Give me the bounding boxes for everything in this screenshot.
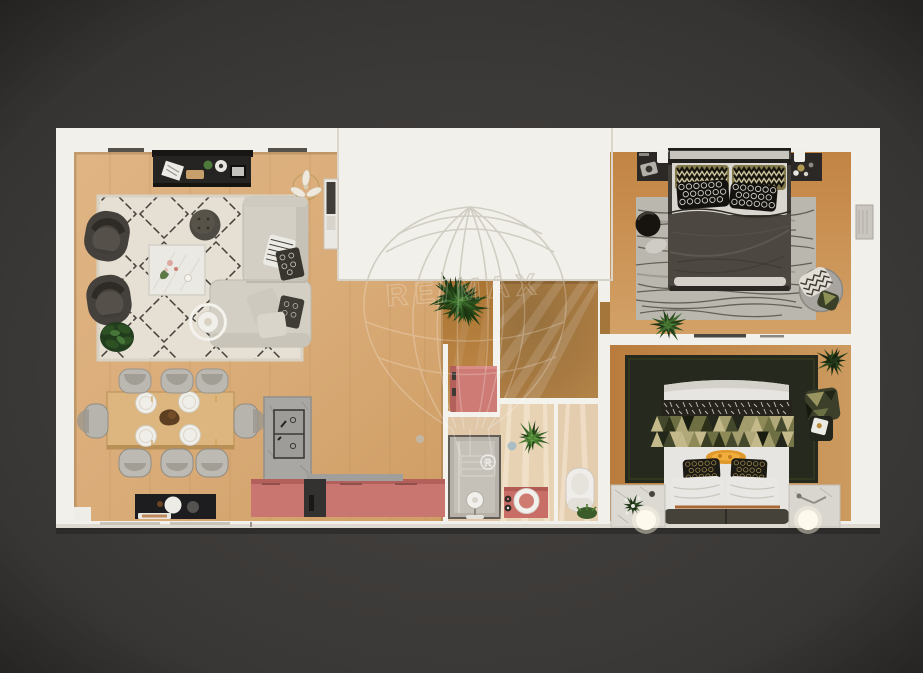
svg-text:R: R [484,458,492,469]
